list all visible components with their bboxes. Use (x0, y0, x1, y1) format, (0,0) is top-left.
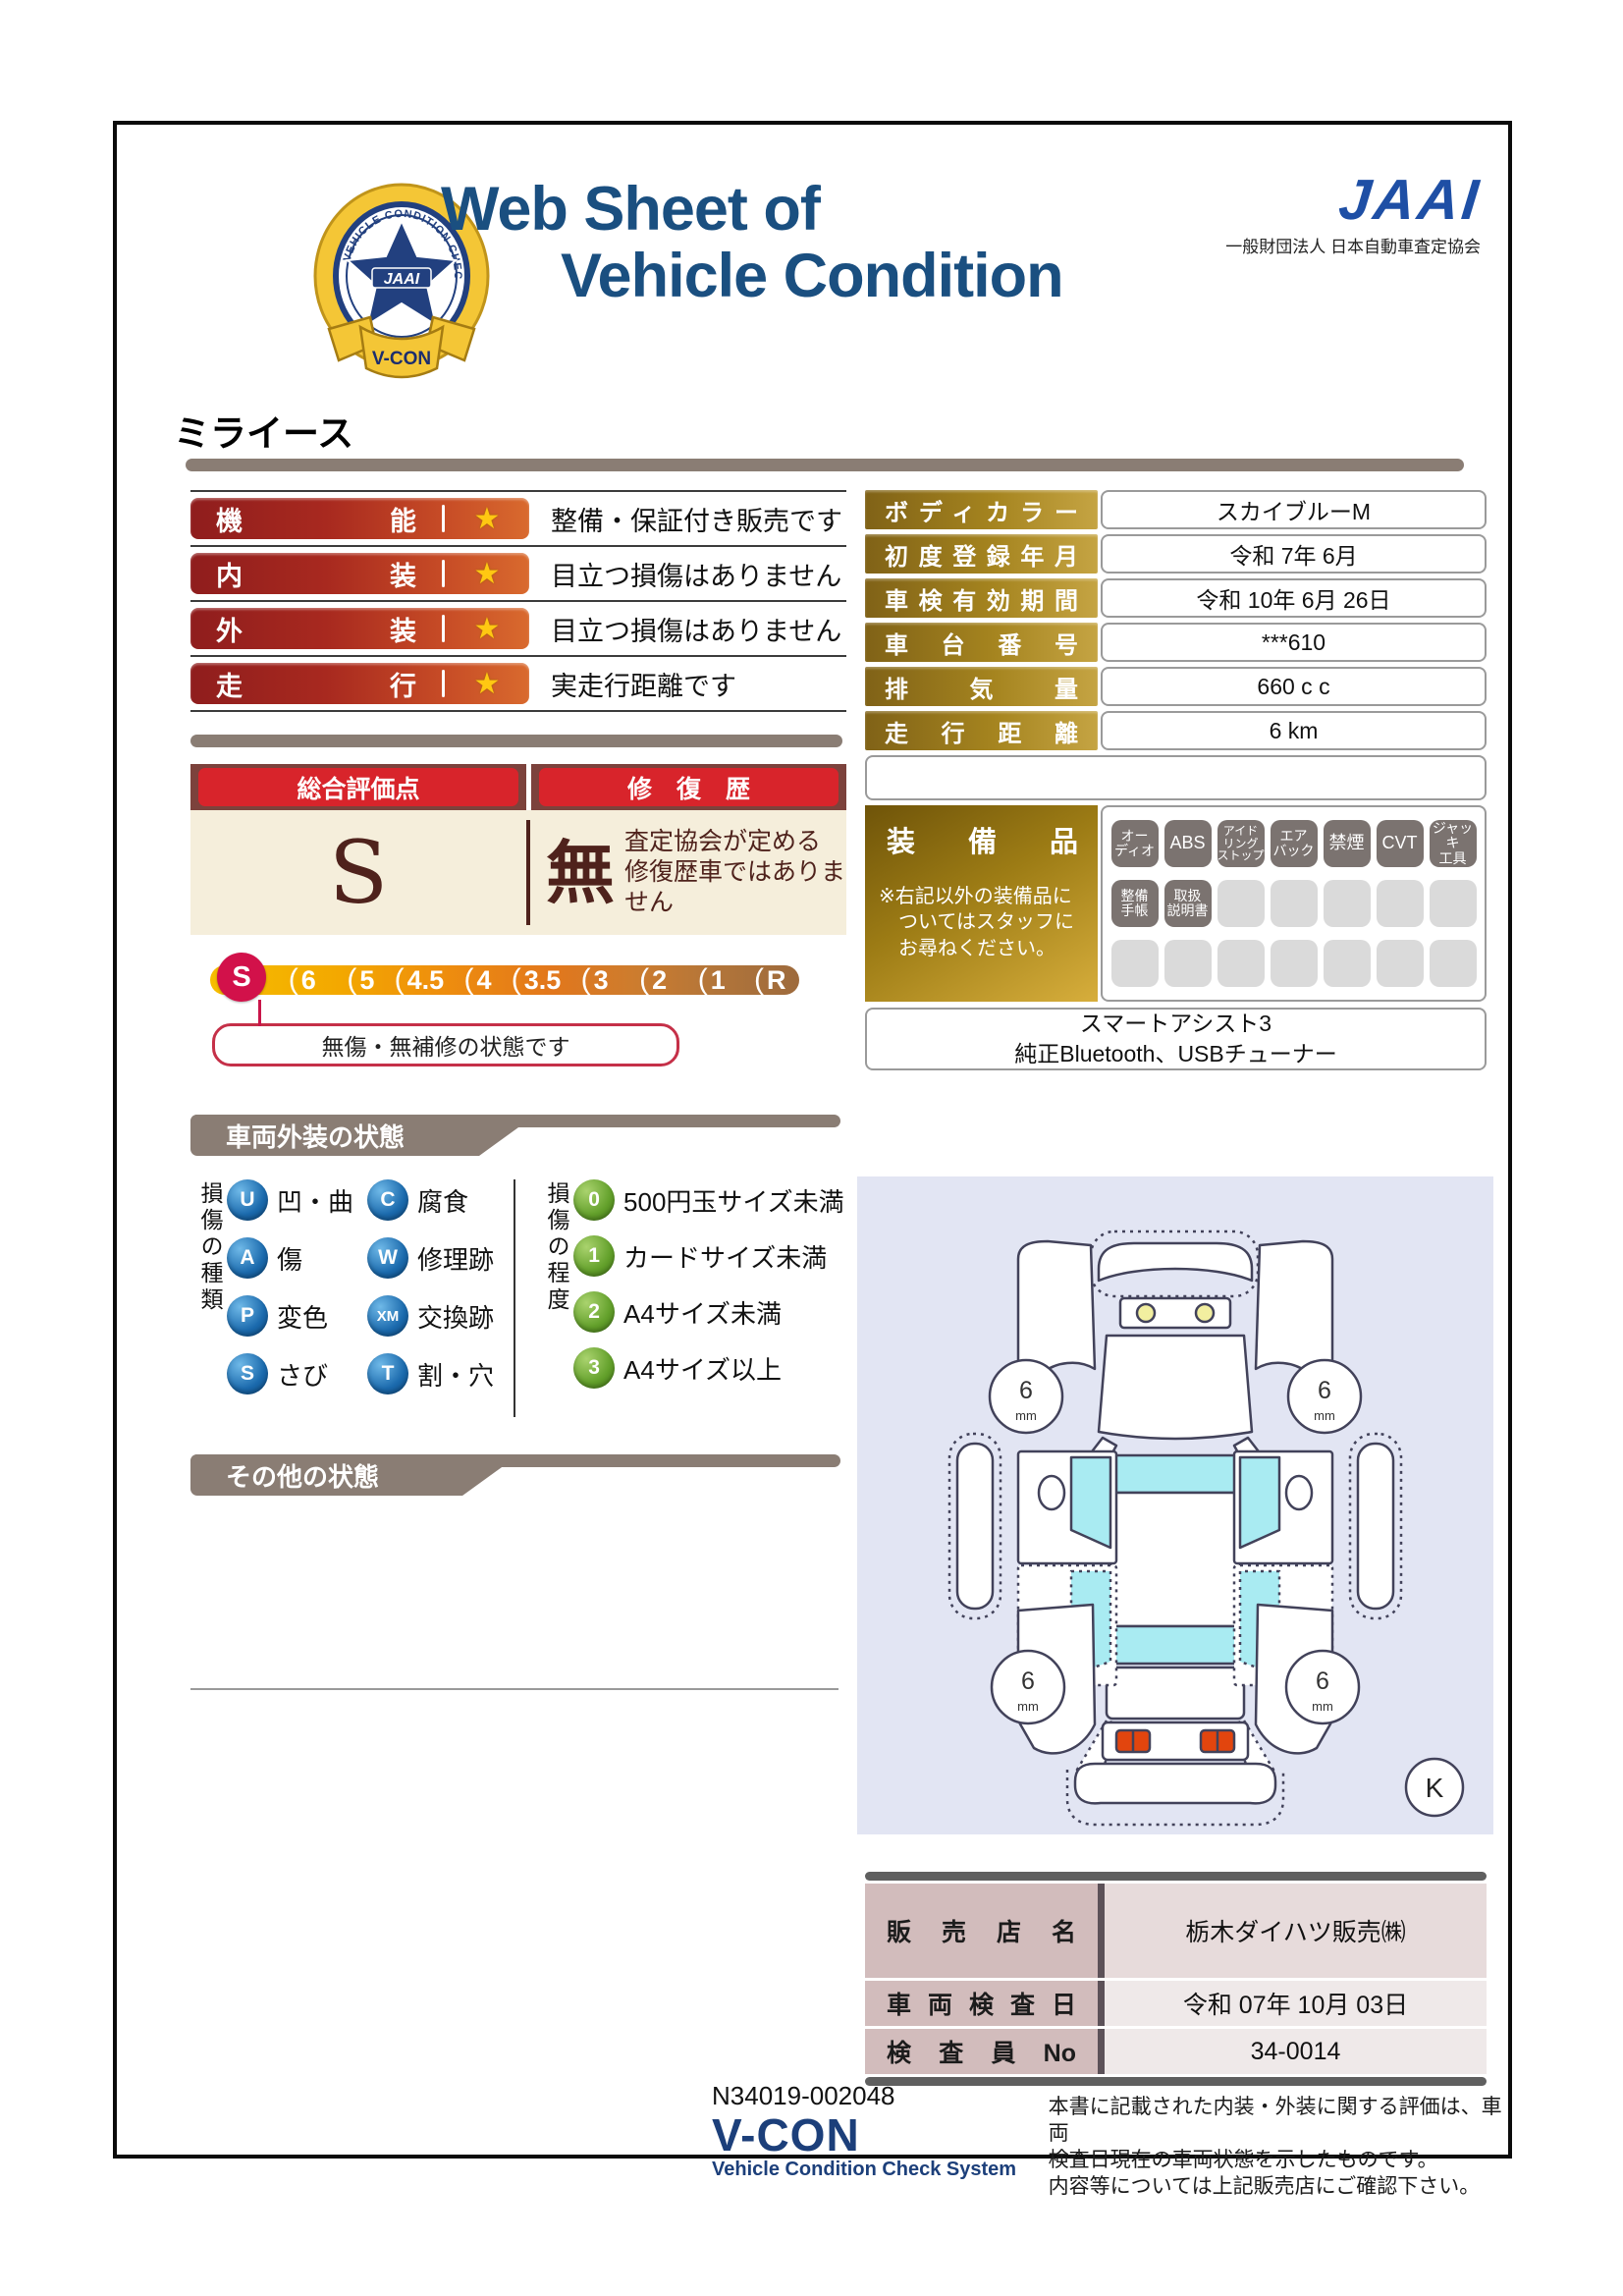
degree-0-icon: 0 (573, 1179, 615, 1221)
grade-s-active: S (210, 958, 273, 1002)
page-title-line1: Web Sheet of (441, 175, 820, 244)
sheet-frame: VEHICLE CONDITION CHECK SYSTEM JAAI V-CO… (113, 121, 1512, 2159)
equip-badge-empty (1324, 880, 1371, 927)
repair-note: 査定協会が定める 修復歴車ではありません (624, 827, 846, 919)
banner-tab: その他の状態 (190, 1454, 519, 1496)
dealer-table: 販売店名 栃木ダイハツ販売㈱ 車両検査日 令和 07年 10月 03日 検査員N… (865, 1872, 1487, 2086)
disclaimer: 本書に記載された内装・外装に関する評価は、車両 検査日現在の車両状態を示したもの… (1049, 2081, 1509, 2201)
extra-line1: スマートアシスト3 (1080, 1009, 1271, 1039)
dealer-label: 検査員No (865, 2034, 1098, 2069)
overall-header: 総合評価点 修 復 歴 (190, 764, 846, 810)
degree-item-2: 2 A4サイズ未満 (573, 1291, 844, 1333)
equip-badge-empty (1430, 940, 1477, 987)
grade-s-circle: S (217, 953, 266, 1002)
equip-badge-cvt: CVT (1377, 820, 1424, 867)
disclaimer-line2: 検査日現在の車両状態を示したものです。 (1049, 2148, 1509, 2174)
equipment-extra-box: スマートアシスト3 純正Bluetooth、USBチューナー (865, 1008, 1487, 1070)
document-number: N34019-002048 (712, 2081, 1027, 2111)
degree-item-3: 3 A4サイズ以上 (573, 1347, 844, 1389)
svg-text:mm: mm (1015, 1408, 1037, 1423)
tire-rear-left: 6 mm (992, 1651, 1064, 1723)
svg-text:mm: mm (1314, 1408, 1335, 1423)
table-divider (1098, 2029, 1105, 2074)
info-value: 令和 10年 6月 26日 (1101, 578, 1487, 618)
bottom-rule (190, 1688, 839, 1690)
svg-text:mm: mm (1312, 1699, 1333, 1714)
other-section-title: その他の状態 (190, 1457, 379, 1494)
rating-row-exterior: 外装 ★ 目立つ損傷はありません (190, 602, 846, 657)
right-column: ボディカラー スカイブルーM 初度登録年月 令和 7年 6月 車検有効期間 令和… (865, 490, 1487, 2086)
svg-text:K: K (1426, 1773, 1444, 1803)
overall-grade: S (190, 810, 526, 935)
equipment-section: 装備品 ※右記以外の装備品に ついてはスタッフに お尋ねください。 オーディオ … (865, 805, 1487, 1002)
rating-desc: 実走行距離です (551, 665, 736, 703)
svg-text:6: 6 (1019, 1377, 1033, 1404)
info-row-chassis-no: 車台番号 ***610 (865, 623, 1487, 662)
legend-item-w: W 修理跡 (367, 1237, 494, 1279)
info-value: 660 c c (1101, 667, 1487, 706)
grade-callout: 無傷・無補修の状態です (212, 1023, 679, 1066)
svg-text:6: 6 (1318, 1377, 1331, 1404)
damage-code-xm-icon: XM (367, 1295, 408, 1337)
equip-badge-jack-tools: ジャッキ工具 (1430, 820, 1477, 867)
other-section-banner: その他の状態 (190, 1454, 846, 1496)
equip-badge-audio: オーディオ (1111, 820, 1159, 867)
rating-label: 外装 (190, 610, 442, 648)
equip-badge-empty (1377, 880, 1424, 927)
info-value: スカイブルーM (1101, 490, 1487, 529)
rating-badge: 走行 ★ (190, 663, 529, 704)
equip-badge-abs: ABS (1164, 820, 1212, 867)
legend-item-c: C 腐食 (367, 1179, 494, 1221)
banner-tab: 車両外装の状態 (190, 1115, 536, 1156)
footer-left: N34019-002048 V-CON Vehicle Condition Ch… (712, 2081, 1027, 2181)
equip-badge-empty (1217, 880, 1265, 927)
overall-score-title: 総合評価点 (297, 770, 419, 805)
legend-item-xm: XM 交換跡 (367, 1295, 494, 1337)
star-icon: ★ (445, 612, 529, 646)
vcon-subtitle: Vehicle Condition Check System (712, 2159, 1027, 2181)
repair-note-line2: 修復歴車ではありません (624, 858, 845, 916)
legend-divider (514, 1179, 515, 1417)
damage-code-a-icon: A (227, 1237, 268, 1279)
dealer-label: 車両検査日 (865, 1986, 1098, 2021)
rating-desc: 目立つ損傷はありません (551, 555, 841, 593)
table-divider (1098, 1884, 1105, 1978)
damage-code-t-icon: T (367, 1353, 408, 1394)
equip-badge-empty (1217, 940, 1265, 987)
rating-label: 内装 (190, 555, 442, 593)
divider-bar (190, 735, 842, 747)
star-icon: ★ (445, 557, 529, 591)
grade-4_5: 4.5 (390, 963, 449, 997)
equipment-title: 装備品 (879, 819, 1086, 860)
equip-badge-empty (1377, 940, 1424, 987)
info-value: 令和 7年 6月 (1101, 534, 1487, 574)
damage-code-s-icon: S (227, 1353, 268, 1394)
emblem-vcon-text: V-CON (372, 349, 431, 369)
info-value: 6 km (1101, 711, 1487, 750)
ratings-list: 機能 ★ 整備・保証付き販売です 内装 ★ 目立つ損傷はありません 外装 (190, 490, 846, 712)
vehicle-name: ミライース (174, 404, 353, 457)
grade-6: 6 (273, 963, 332, 997)
dealer-label: 販売店名 (865, 1913, 1098, 1948)
divider-bar (186, 459, 1464, 471)
overall-body: S 無 査定協会が定める 修復歴車ではありません (190, 810, 846, 935)
info-label: 初度登録年月 (865, 537, 1098, 572)
equip-badge-airbag: エアバック (1271, 820, 1318, 867)
page-title: Web Sheet of Vehicle Condition (441, 176, 1063, 309)
info-label: 排気量 (865, 670, 1098, 704)
legend-item-u: U 凹・曲 (227, 1179, 353, 1221)
svg-text:6: 6 (1021, 1667, 1035, 1695)
grade-4: 4 (449, 963, 508, 997)
extra-line2: 純正Bluetooth、USBチューナー (1014, 1039, 1336, 1069)
equip-badge-service-book: 整備手帳 (1111, 880, 1159, 927)
equip-badge-owners-manual: 取扱説明書 (1164, 880, 1212, 927)
degree-1-icon: 1 (573, 1235, 615, 1277)
disclaimer-line1: 本書に記載された内装・外装に関する評価は、車両 (1049, 2095, 1509, 2148)
dealer-value: 令和 07年 10月 03日 (1105, 1981, 1487, 2026)
info-row-mileage: 走行距離 6 km (865, 711, 1487, 750)
legend-item-s: S さび (227, 1353, 353, 1394)
damage-code-c-icon: C (367, 1179, 408, 1221)
svg-text:6: 6 (1316, 1667, 1329, 1695)
legend-item-p: P 変色 (227, 1295, 353, 1337)
svg-text:mm: mm (1017, 1699, 1039, 1714)
rating-row-mileage: 走行 ★ 実走行距離です (190, 657, 846, 712)
callout-stem (258, 1000, 261, 1026)
rating-label: 機能 (190, 500, 442, 538)
grade-3: 3 (566, 963, 624, 997)
info-label: 走行距離 (865, 714, 1098, 748)
rating-row-interior: 内装 ★ 目立つ損傷はありません (190, 547, 846, 602)
repair-none-char: 無 (546, 839, 615, 907)
grade-scale: S 6 5 4.5 4 3.5 3 2 1 R (210, 960, 799, 1000)
equipment-note: ※右記以外の装備品に ついてはスタッフに お尋ねください。 (879, 884, 1086, 961)
equip-badge-no-smoking: 禁煙 (1324, 820, 1371, 867)
equip-badge-empty (1324, 940, 1371, 987)
overall-score-box: 総合評価点 修 復 歴 S 無 査定協会が定める 修復歴車ではありません (190, 764, 846, 935)
exterior-section-title: 車両外装の状態 (190, 1118, 405, 1154)
rating-badge: 機能 ★ (190, 498, 529, 539)
rating-row-function: 機能 ★ 整備・保証付き販売です (190, 492, 846, 547)
equipment-header-panel: 装備品 ※右記以外の装備品に ついてはスタッフに お尋ねください。 (865, 805, 1098, 1002)
damage-type-grid: U 凹・曲 C 腐食 A 傷 W 修理跡 P 変色 (227, 1179, 494, 1394)
rating-badge: 内装 ★ (190, 553, 529, 594)
tire-front-left: 6 mm (990, 1360, 1062, 1433)
damage-degree-list: 0 500円玉サイズ未満 1 カードサイズ未満 2 A4サイズ未満 3 A4サイ… (573, 1179, 844, 1389)
damage-code-p-icon: P (227, 1295, 268, 1337)
degree-2-icon: 2 (573, 1291, 615, 1333)
overall-score-header: 総合評価点 (190, 764, 526, 810)
rating-desc: 目立つ損傷はありません (551, 610, 841, 648)
rating-badge: 外装 ★ (190, 608, 529, 649)
info-row-inspection-valid: 車検有効期間 令和 10年 6月 26日 (865, 578, 1487, 618)
repair-history-header: 修 復 歴 (531, 764, 846, 810)
exterior-section-banner: 車両外装の状態 (190, 1115, 846, 1156)
info-value: ***610 (1101, 623, 1487, 662)
star-icon: ★ (445, 667, 529, 701)
legend-item-t: T 割・穴 (367, 1353, 494, 1394)
tire-rear-right: 6 mm (1286, 1651, 1359, 1723)
repair-history-title: 修 復 歴 (627, 770, 750, 805)
damage-legend: 損傷の種類 U 凹・曲 C 腐食 A 傷 W 修理跡 (190, 1177, 846, 1417)
info-row-first-registration: 初度登録年月 令和 7年 6月 (865, 534, 1487, 574)
vehicle-diagram-panel: 6 mm 6 mm 6 mm 6 (857, 1176, 1493, 1834)
jaai-wordmark: JAAI (1336, 172, 1484, 229)
info-label: 車台番号 (865, 626, 1098, 660)
equip-badge-empty (1111, 940, 1159, 987)
disclaimer-line3: 内容等については上記販売店にご確認下さい。 (1049, 2174, 1509, 2201)
repair-history-value: 無 査定協会が定める 修復歴車ではありません (530, 810, 846, 935)
grade-r: R (741, 963, 800, 997)
damage-code-u-icon: U (227, 1179, 268, 1221)
grade-5: 5 (332, 963, 391, 997)
jaai-subtitle: 一般財団法人 日本自動車査定協会 (1225, 233, 1481, 257)
rating-label: 走行 (190, 665, 442, 703)
info-label: ボディカラー (865, 493, 1098, 527)
grade-3_5: 3.5 (507, 963, 566, 997)
vehicle-diagram: 6 mm 6 mm 6 mm 6 (857, 1176, 1493, 1834)
grade-callout-text: 無傷・無補修の状態です (322, 1028, 570, 1062)
table-top-bar (865, 1872, 1487, 1881)
rating-desc: 整備・保証付き販売です (551, 500, 842, 538)
damage-type-label: 損傷の種類 (198, 1181, 221, 1314)
equip-badge-empty (1430, 880, 1477, 927)
jaai-logo: JAAI 一般財団法人 日本自動車査定協会 (1225, 172, 1481, 257)
equip-badge-empty (1271, 880, 1318, 927)
vcon-wordmark: V-CON (712, 2111, 1027, 2159)
damage-degree-label: 損傷の程度 (545, 1181, 568, 1314)
degree-item-0: 0 500円玉サイズ未満 (573, 1179, 844, 1221)
degree-3-icon: 3 (573, 1347, 615, 1389)
k-marker: K (1406, 1759, 1463, 1816)
equipment-grid: オーディオ ABS アイドリングストップ エアバック 禁煙 CVT (1101, 805, 1487, 1002)
dealer-value: 34-0014 (1105, 2029, 1487, 2074)
info-row-body-color: ボディカラー スカイブルーM (865, 490, 1487, 529)
info-row-displacement: 排気量 660 c c (865, 667, 1487, 706)
star-icon: ★ (445, 502, 529, 536)
left-column: 機能 ★ 整備・保証付き販売です 内装 ★ 目立つ損傷はありません 外装 (190, 490, 846, 1690)
tire-front-right: 6 mm (1288, 1360, 1361, 1433)
dealer-row-inspector-no: 検査員No 34-0014 (865, 2029, 1487, 2074)
legend-item-a: A 傷 (227, 1237, 353, 1279)
dealer-row-shop: 販売店名 栃木ダイハツ販売㈱ (865, 1884, 1487, 1978)
emblem-jaai-text: JAAI (384, 271, 420, 288)
dealer-row-inspection-date: 車両検査日 令和 07年 10月 03日 (865, 1981, 1487, 2026)
info-label: 車検有効期間 (865, 581, 1098, 616)
grade-2: 2 (623, 963, 682, 997)
degree-item-1: 1 カードサイズ未満 (573, 1235, 844, 1277)
repair-note-line1: 査定協会が定める (624, 828, 821, 855)
footer: N34019-002048 V-CON Vehicle Condition Ch… (712, 2081, 1509, 2201)
page-title-line2: Vehicle Condition (441, 243, 1063, 309)
equip-badge-empty (1164, 940, 1212, 987)
equip-badge-idling-stop: アイドリングストップ (1217, 820, 1265, 867)
table-divider (1098, 1981, 1105, 2026)
damage-code-w-icon: W (367, 1237, 408, 1279)
equip-badge-empty (1271, 940, 1318, 987)
grade-1: 1 (682, 963, 741, 997)
info-empty-row (865, 755, 1487, 800)
dealer-value: 栃木ダイハツ販売㈱ (1105, 1884, 1487, 1978)
